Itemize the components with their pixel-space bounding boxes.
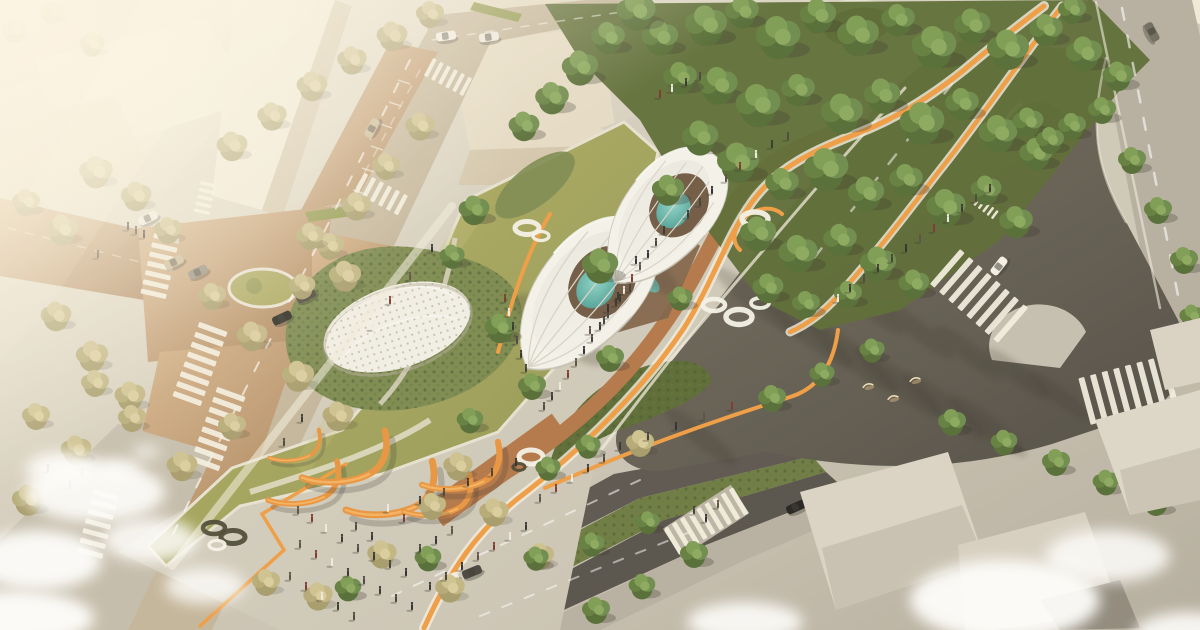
warm-tint bbox=[0, 0, 1200, 630]
aerial-render-canvas: Aerial architectural rendering of a tria… bbox=[0, 0, 1200, 630]
park-masterplan-rendering: Aerial architectural rendering of a tria… bbox=[0, 0, 1200, 630]
